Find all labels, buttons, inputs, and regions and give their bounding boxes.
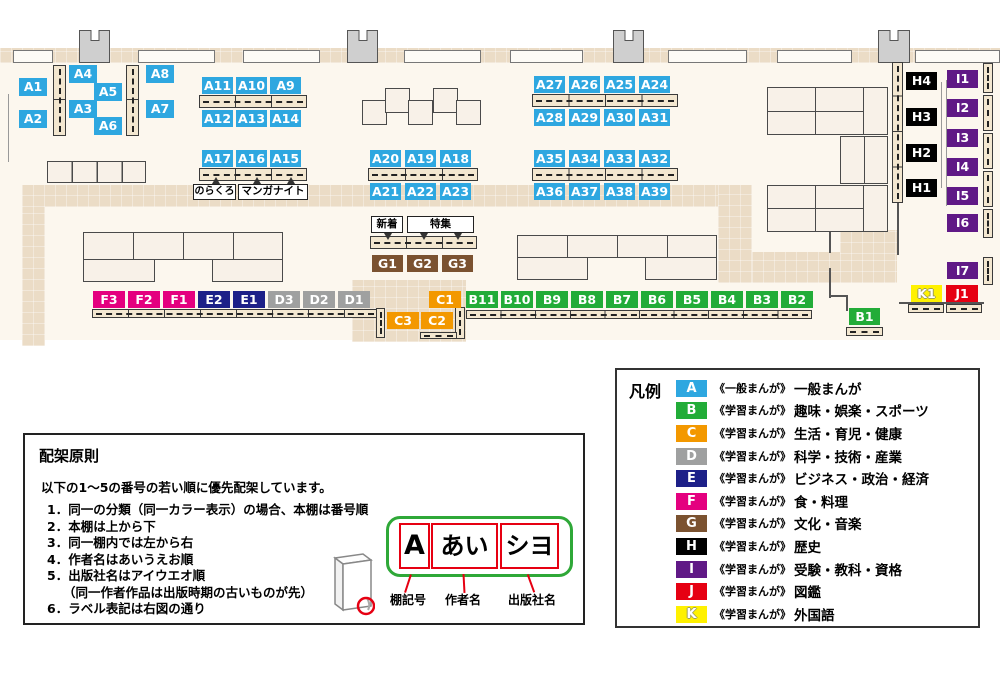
shelf-label-d1: D1 [338, 291, 370, 308]
legend-category: 歴史 [794, 536, 821, 556]
window [510, 50, 583, 63]
legend-category: 図鑑 [794, 581, 821, 601]
shelf-label-a30: A30 [604, 109, 635, 126]
legend-chip-c: C [676, 425, 707, 442]
legend-type: 《学習まんが》 [714, 561, 791, 577]
legend-row-i: I《学習まんが》受験・教科・資格 [676, 560, 902, 578]
bookshelf [908, 304, 944, 313]
shelf-label-a29: A29 [569, 109, 600, 126]
bookshelf [532, 168, 678, 181]
shelf-label-a36: A36 [534, 183, 565, 200]
legend-type: 《学習まんが》 [714, 402, 791, 418]
legend-chip-j: J [676, 583, 707, 600]
legend-category: 食・料理 [794, 491, 848, 511]
legend-row-d: D《学習まんが》科学・技術・産業 [676, 447, 902, 465]
caption-shelf-code: 棚記号 [390, 591, 426, 608]
table [863, 87, 888, 135]
pillar [613, 30, 644, 63]
table [767, 111, 816, 135]
shelf-label-h2: H2 [906, 144, 937, 162]
corridor-lower-right [752, 252, 897, 283]
shelf-label-a26: A26 [569, 76, 600, 93]
table [864, 136, 888, 184]
bookshelf [983, 257, 993, 285]
table [133, 232, 184, 260]
shelf-label-a35: A35 [534, 150, 565, 167]
bookshelf [846, 327, 883, 336]
table [815, 87, 864, 112]
pillar-notch [90, 30, 99, 41]
table [617, 235, 668, 258]
bookshelf [53, 65, 66, 136]
caption-author: 作者名 [445, 591, 481, 608]
shelf-label-i4: I4 [947, 158, 978, 176]
shelf-label-b6: B6 [641, 291, 673, 308]
pillar [347, 30, 378, 63]
shelf-label-a4: A4 [69, 65, 97, 83]
table [767, 208, 816, 232]
floor-map-page: A1 A2 A3 A4 A5 A6 A7 A8 A9 A10 A11 A12 A… [0, 0, 1000, 700]
window [777, 50, 852, 63]
callout-pointer [212, 177, 220, 184]
pillar-notch [890, 30, 899, 41]
bookshelf [420, 332, 457, 339]
shelf-label-a8: A8 [146, 65, 174, 83]
table [233, 232, 283, 260]
table [767, 185, 816, 209]
shelf-label-c3: C3 [387, 312, 419, 329]
legend-type: 《学習まんが》 [714, 493, 791, 509]
caption-publisher: 出版社名 [508, 591, 556, 608]
shelf-label-f1: F1 [163, 291, 195, 308]
shelf-label-j1: J1 [946, 285, 978, 302]
bookshelf [376, 308, 385, 338]
bookshelf [892, 62, 903, 203]
legend-category: 科学・技術・産業 [794, 446, 902, 466]
bookshelf [983, 209, 993, 238]
shelf-label-a37: A37 [569, 183, 600, 200]
corridor-stub [840, 230, 897, 254]
callout-pointer [384, 233, 392, 240]
shelf-label-b9: B9 [536, 291, 568, 308]
shelf-label-a9: A9 [270, 77, 301, 94]
bookshelf [983, 63, 993, 93]
table [815, 208, 864, 232]
table [433, 88, 458, 113]
legend-type: 《学習まんが》 [714, 448, 791, 464]
legend-type: 《学習まんが》 [714, 583, 791, 599]
legend-type: 《学習まんが》 [714, 606, 791, 622]
window [13, 50, 53, 63]
legend-row-j: J《学習まんが》図鑑 [676, 582, 821, 600]
table [183, 232, 234, 260]
window [243, 50, 320, 63]
legend-type: 《学習まんが》 [714, 425, 791, 441]
shelf-label-b2: B2 [781, 291, 813, 308]
shelf-label-d3: D3 [268, 291, 300, 308]
h-i-connector-line [941, 82, 942, 188]
shelf-label-a20: A20 [370, 150, 401, 167]
legend-type: 《学習まんが》 [714, 538, 791, 554]
shelf-label-a18: A18 [440, 150, 471, 167]
shelf-label-i3: I3 [947, 129, 978, 147]
shelf-label-a24: A24 [639, 76, 670, 93]
bookshelf [946, 304, 982, 313]
shelf-label-a1: A1 [19, 78, 47, 96]
corridor-turn [718, 185, 752, 283]
table [815, 185, 864, 209]
table [517, 257, 588, 280]
table [667, 235, 717, 258]
shelf-label-a25: A25 [604, 76, 635, 93]
shelf-label-b1: B1 [849, 308, 880, 325]
label-cell-author: あい [431, 523, 498, 569]
shelf-label-a14: A14 [270, 110, 301, 127]
shelf-label-a5: A5 [94, 83, 122, 101]
callout-pointer [287, 177, 295, 184]
legend-chip-h: H [676, 538, 707, 555]
shelf-label-b10: B10 [501, 291, 533, 308]
callout-new-arrival-label: 新着 [377, 218, 398, 230]
wall-line [8, 94, 9, 162]
shelf-label-a2: A2 [19, 110, 47, 128]
legend-title: 凡例 [629, 378, 661, 402]
legend-row-h: H《学習まんが》歴史 [676, 537, 821, 555]
shelf-label-d2: D2 [303, 291, 335, 308]
shelf-label-a15: A15 [270, 150, 301, 167]
book-illustration [327, 548, 375, 618]
pillar-notch [624, 30, 633, 41]
legend-category: 受験・教科・資格 [794, 559, 902, 579]
legend-row-b: B《学習まんが》趣味・娯楽・スポーツ [676, 401, 929, 419]
bookshelf [983, 133, 993, 169]
shelf-label-a13: A13 [236, 110, 267, 127]
legend-chip-e: E [676, 470, 707, 487]
table [645, 257, 717, 280]
legend-chip-g: G [676, 515, 707, 532]
shelf-label-i7: I7 [947, 262, 978, 279]
legend-chip-k: K [676, 606, 707, 623]
shelf-label-i2: I2 [947, 99, 978, 117]
bookshelf [532, 94, 678, 107]
legend-row-k: K《学習まんが》外国語 [676, 605, 835, 623]
shelf-label-i1: I1 [947, 70, 978, 88]
callout-new-arrival: 新着 [371, 216, 403, 233]
shelf-label-b4: B4 [711, 291, 743, 308]
shelf-label-a23: A23 [440, 183, 471, 200]
window [668, 50, 747, 63]
legend-row-f: F《学習まんが》食・料理 [676, 492, 848, 510]
legend-row-c: C《学習まんが》生活・育児・健康 [676, 424, 902, 442]
shelf-label-i5: I5 [947, 187, 978, 205]
label-cell-shelf-code: A [399, 523, 430, 569]
shelf-label-a21: A21 [370, 183, 401, 200]
window [915, 50, 1000, 63]
shelf-label-a34: A34 [569, 150, 600, 167]
legend-type: 《学習まんが》 [714, 515, 791, 531]
shelf-label-a28: A28 [534, 109, 565, 126]
shelf-label-b8: B8 [571, 291, 603, 308]
wall-line [897, 203, 899, 255]
legend-chip-i: I [676, 561, 707, 578]
shelf-label-g3: G3 [442, 255, 473, 272]
label-cell-publisher: シヨ [500, 523, 559, 569]
bookshelf [466, 310, 812, 319]
bookshelf [92, 309, 378, 318]
principles-intro: 以下の1～5の番号の若い順に優先配架しています。 [41, 477, 332, 496]
shelf-label-g2: G2 [407, 255, 438, 272]
shelf-label-e2: E2 [198, 291, 230, 308]
legend-category: 文化・音楽 [794, 513, 862, 533]
callout-pointer [253, 177, 261, 184]
table [83, 259, 155, 282]
callout-pointer [420, 233, 428, 240]
legend-row-g: G《学習まんが》文化・音楽 [676, 514, 862, 532]
shelf-label-h3: H3 [906, 108, 937, 126]
legend-type: 《一般まんが》 [714, 380, 791, 396]
table [517, 235, 568, 258]
legend-row-e: E《学習まんが》ビジネス・政治・経済 [676, 469, 929, 487]
shelf-label-b5: B5 [676, 291, 708, 308]
shelf-label-a22: A22 [405, 183, 436, 200]
legend-chip-a: A [676, 380, 707, 397]
pillar [79, 30, 110, 63]
table [212, 259, 283, 282]
shelf-label-f2: F2 [128, 291, 160, 308]
legend-category: 一般まんが [794, 378, 862, 398]
table-strip [47, 161, 146, 183]
shelf-label-c1: C1 [429, 291, 461, 308]
shelf-label-a17: A17 [202, 150, 233, 167]
principles-line: 6．ラベル表記は右図の通り [47, 598, 206, 617]
shelf-label-i6: I6 [947, 214, 978, 232]
table [863, 185, 888, 232]
callout-pointer [454, 233, 462, 240]
shelf-label-f3: F3 [93, 291, 125, 308]
table [408, 100, 433, 125]
table [840, 136, 865, 184]
callout-norakuro: のらくろ [193, 184, 236, 200]
shelf-label-a31: A31 [639, 109, 670, 126]
shelf-label-a38: A38 [604, 183, 635, 200]
wall-line [829, 230, 831, 253]
corridor-left [22, 185, 45, 346]
window [404, 50, 481, 63]
table [385, 88, 410, 113]
legend-category: 生活・育児・健康 [794, 423, 902, 443]
legend-category: ビジネス・政治・経済 [794, 468, 929, 488]
table [456, 100, 481, 125]
shelf-label-a6: A6 [94, 117, 122, 135]
legend-chip-b: B [676, 402, 707, 419]
shelf-label-a3: A3 [69, 100, 97, 118]
legend-category: 趣味・娯楽・スポーツ [794, 400, 929, 420]
legend-chip-f: F [676, 493, 707, 510]
legend-category: 外国語 [794, 604, 835, 624]
table [767, 87, 816, 112]
legend-row-a: A《一般まんが》一般まんが [676, 379, 862, 397]
legend-type: 《学習まんが》 [714, 470, 791, 486]
principles-title: 配架原則 [39, 445, 99, 466]
pillar-notch [358, 30, 367, 41]
callout-feature: 特集 [407, 216, 474, 233]
shelf-label-e1: E1 [233, 291, 265, 308]
window [138, 50, 215, 63]
shelf-label-h1: H1 [906, 179, 937, 197]
callout-feature-label: 特集 [430, 218, 451, 230]
shelf-label-b11: B11 [466, 291, 498, 308]
shelf-label-a27: A27 [534, 76, 565, 93]
legend-chip-d: D [676, 448, 707, 465]
callout-manga-night-label: マンガナイト [242, 185, 305, 197]
table [83, 232, 134, 260]
bookshelf [983, 95, 993, 131]
shelf-label-a19: A19 [405, 150, 436, 167]
shelf-label-a12: A12 [202, 110, 233, 127]
bookshelf [199, 95, 307, 108]
bookshelf [368, 168, 478, 181]
shelf-label-a32: A32 [639, 150, 670, 167]
legend-box: 凡例 A《一般まんが》一般まんが B《学習まんが》趣味・娯楽・スポーツ C《学習… [615, 368, 980, 628]
table [567, 235, 618, 258]
shelf-label-a16: A16 [236, 150, 267, 167]
table [815, 111, 864, 135]
shelf-label-a11: A11 [202, 77, 233, 94]
callout-norakuro-label: のらくろ [195, 186, 235, 197]
wall-line [829, 268, 831, 298]
callout-manga-night: マンガナイト [238, 184, 308, 200]
shelf-label-c2: C2 [421, 312, 453, 329]
table [362, 100, 387, 125]
bookshelf [983, 171, 993, 207]
shelf-label-g1: G1 [372, 255, 403, 272]
shelf-label-a7: A7 [146, 100, 174, 118]
shelf-label-a39: A39 [639, 183, 670, 200]
shelf-label-a33: A33 [604, 150, 635, 167]
shelf-label-b3: B3 [746, 291, 778, 308]
shelf-label-b7: B7 [606, 291, 638, 308]
shelf-label-h4: H4 [906, 72, 937, 90]
bookshelf [126, 65, 139, 136]
wall-line [846, 295, 848, 311]
shelf-label-a10: A10 [236, 77, 267, 94]
shelf-label-k1: K1 [911, 285, 942, 302]
pillar [878, 30, 910, 63]
